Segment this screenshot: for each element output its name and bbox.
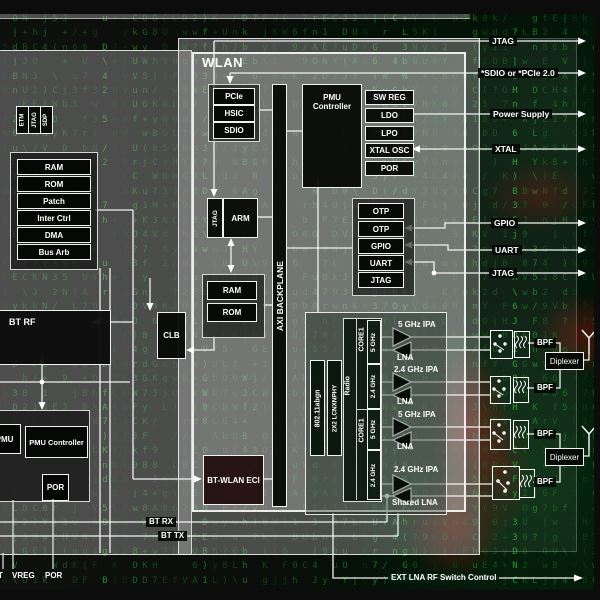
wlan-ram-block: RAM bbox=[207, 281, 257, 300]
bottom-label-por: POR bbox=[45, 571, 62, 580]
amp4-lna-label: Shared LNA bbox=[392, 498, 438, 507]
otp-block-gpio: GPIO bbox=[358, 238, 404, 254]
amp2-lna-label: LNA bbox=[397, 397, 413, 406]
ext-label-xtal: XTAL bbox=[492, 144, 520, 154]
amp2-ipa-label: 2.4 GHz IPA bbox=[394, 365, 438, 374]
bt-pmu-controller-block: PMU Controller bbox=[25, 426, 88, 458]
power-block-swreg: SW REG bbox=[365, 90, 414, 105]
bt-block-bus-arb: Bus Arb bbox=[17, 244, 91, 260]
bt-rf-block: BT RF bbox=[0, 310, 111, 365]
bpf-label-4: BPF bbox=[534, 477, 556, 487]
wlan-title: WLAN bbox=[202, 55, 243, 70]
bpf-label-2: BPF bbox=[534, 383, 556, 393]
ext-label-power-supply: Power Supply bbox=[490, 109, 552, 119]
wlan-rom-block: ROM bbox=[207, 303, 257, 322]
top-black-bar bbox=[0, 0, 600, 14]
power-block-lpo: LPO bbox=[365, 126, 414, 141]
otp-block-uart: UART bbox=[358, 255, 404, 271]
bt-por-block: POR bbox=[42, 474, 69, 501]
bpf-filter-4 bbox=[519, 469, 535, 498]
diplexer-2: Diplexer bbox=[545, 448, 584, 466]
rf-switch-3 bbox=[490, 419, 511, 450]
wiring-layer bbox=[0, 0, 600, 600]
bt-tx-label: BT TX bbox=[158, 531, 187, 541]
ext-lna-rf-switch-control-label: EXT LNA RF Switch Control bbox=[388, 573, 499, 583]
bpf-label-3: BPF bbox=[534, 429, 556, 439]
ext-label-sdio-pcie: *SDIO or *PCIe 2.0 bbox=[478, 68, 558, 78]
otp-block-2: OTP bbox=[358, 221, 404, 237]
bt-block-inter-ctrl: Inter Ctrl bbox=[17, 210, 91, 226]
bpf-label-1: BPF bbox=[534, 338, 556, 348]
rf-switch-1 bbox=[490, 330, 513, 359]
ext-label-jtag-top: JTAG bbox=[489, 36, 517, 46]
soc-block-diagram: f 5 f C V 1 N ( U 6 Y C f U A g 3 9 ) 9 … bbox=[0, 0, 600, 600]
otp-block-1: OTP bbox=[358, 203, 404, 219]
bt-rx-label: BT RX bbox=[146, 517, 176, 527]
bpf-filter-1 bbox=[514, 331, 530, 358]
bt-block-rom: ROM bbox=[17, 176, 91, 192]
core2-label: CORE1 bbox=[355, 432, 369, 452]
bt-block-dma: DMA bbox=[17, 227, 91, 243]
bottom-black-bar bbox=[0, 590, 600, 600]
amp1-lna-label: LNA bbox=[397, 353, 413, 362]
bt-block-patch: Patch bbox=[17, 193, 91, 209]
core2-5ghz: 5 GHz bbox=[367, 409, 381, 450]
power-block-por: POR bbox=[365, 161, 414, 176]
ext-label-gpio: GPIO bbox=[491, 218, 518, 228]
core1-5ghz: 5 GHz bbox=[367, 320, 381, 364]
clb-block: CLB bbox=[157, 312, 186, 359]
power-block-ldo: LDO bbox=[365, 108, 414, 123]
bt-wlan-eci-block: BT-WLAN ECI bbox=[203, 455, 264, 505]
bt-tag-sdp: SDP bbox=[40, 106, 53, 134]
bpf-filter-icon bbox=[515, 336, 532, 487]
power-block-xtal-osc: XTAL OSC bbox=[365, 143, 414, 158]
amp3-lna-label: LNA bbox=[397, 442, 413, 451]
mac-block: 802.11abgn bbox=[310, 360, 325, 456]
right-black-bar bbox=[594, 0, 600, 600]
amp4-ipa-label: 2.4 GHz IPA bbox=[394, 465, 438, 474]
bottom-label-vreg: VREG bbox=[12, 571, 35, 580]
wlan-jtag-block: JTAG bbox=[207, 198, 223, 238]
amp3-ipa-label: 5 GHz IPA bbox=[398, 410, 436, 419]
bt-block-ram: RAM bbox=[17, 159, 91, 175]
axi-backplane-bar: AXI BACKPLANE bbox=[272, 84, 287, 507]
phy-block: 2X2 LCNXNPHY bbox=[327, 360, 342, 456]
core1-label: CORE1 bbox=[355, 341, 369, 361]
ext-label-uart: UART bbox=[492, 245, 522, 255]
wlan-pmu-controller-block: PMU Controller bbox=[302, 84, 362, 188]
bpf-filter-3 bbox=[513, 420, 529, 449]
wlan-arm-block: ARM bbox=[223, 198, 258, 238]
bottom-label-partial: T bbox=[0, 571, 3, 580]
bpf-filter-2 bbox=[513, 377, 529, 403]
core1-24ghz: 2.4 GHz bbox=[367, 364, 381, 409]
host-if-pcie: PCIe bbox=[213, 88, 255, 105]
host-if-hsic: HSIC bbox=[213, 105, 255, 122]
ext-label-jtag-bottom: JTAG bbox=[489, 268, 517, 278]
otp-block-jtag: JTAG bbox=[358, 272, 404, 288]
core2-24ghz: 2.4 GHz bbox=[367, 450, 381, 500]
diplexer-1: Diplexer bbox=[545, 352, 584, 370]
rf-switch-2 bbox=[490, 376, 511, 404]
radio-label: Radio bbox=[341, 385, 355, 405]
rf-switch-4 bbox=[492, 466, 520, 500]
host-if-sdio: SDIO bbox=[213, 122, 255, 139]
bt-pmu-block: PMU bbox=[0, 424, 21, 454]
amp1-ipa-label: 5 GHz IPA bbox=[398, 320, 436, 329]
